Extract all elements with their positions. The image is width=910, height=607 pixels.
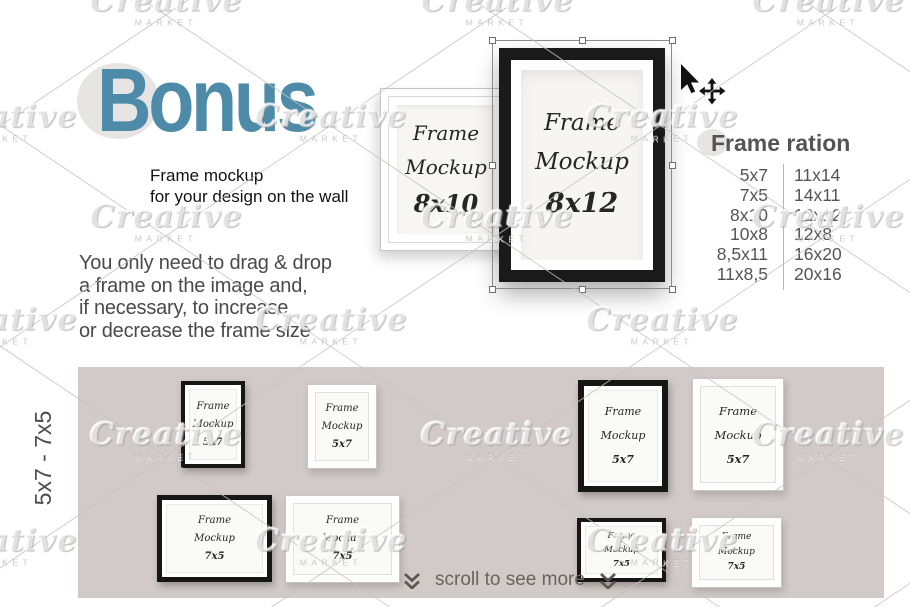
- watermark-sub: MARKET: [0, 558, 77, 567]
- frame-paper: FrameMockup7x5: [293, 503, 392, 575]
- frame-size-text: 7x5: [728, 560, 746, 575]
- move-cursor-icon: [680, 63, 726, 109]
- tagline-line1: Frame mockup: [150, 166, 348, 187]
- watermark-sub: MARKET: [0, 134, 77, 143]
- watermark-word: Creative: [0, 101, 77, 132]
- ratio-cell-left: 7x5: [688, 186, 768, 206]
- frame-text: Frame: [325, 400, 358, 418]
- frame-size-text: 7x5: [333, 548, 353, 566]
- frame-paper: FrameMockup7x5: [585, 526, 658, 574]
- gallery-frame-7x5-black-2[interactable]: FrameMockup7x5: [157, 495, 272, 582]
- frame-paper: FrameMockup5x7: [315, 392, 369, 461]
- ratio-cell-right: 16x20: [794, 245, 874, 265]
- watermark-sub: MARKET: [90, 18, 243, 27]
- frame-text: Mockup: [193, 416, 234, 434]
- frame-text: Frame: [196, 398, 229, 416]
- creative-market-watermark: CreativeMARKET: [0, 304, 77, 346]
- ratio-cell-right: 14x11: [794, 186, 874, 206]
- frame-text: Frame: [198, 512, 231, 530]
- creative-market-watermark: CreativeMARKET: [90, 201, 243, 243]
- selection-handle[interactable]: [669, 37, 676, 44]
- selection-handle[interactable]: [579, 286, 586, 293]
- frame-size-text: 5x7: [727, 447, 750, 471]
- description-line: or decrease the frame size: [79, 320, 332, 343]
- watermark-word: Creative: [421, 0, 574, 16]
- ratio-cell-right: 12x8: [794, 225, 874, 245]
- frame-text: Mockup: [322, 530, 363, 548]
- selection-handle[interactable]: [489, 286, 496, 293]
- tagline-line2: for your design on the wall: [150, 187, 348, 208]
- ratio-table-left-column: 5x77x58x1010x88,5x1111x8,5: [688, 166, 768, 285]
- frame-text: Mockup: [322, 418, 363, 436]
- ratio-cell-right: 11x14: [794, 166, 874, 186]
- ratio-table-right-column: 11x1414x1112x1212x816x2020x16: [794, 166, 874, 285]
- ratio-cell-left: 5x7: [688, 166, 768, 186]
- frame-paper: FrameMockup5x7: [700, 386, 776, 483]
- watermark-word: Creative: [90, 0, 243, 16]
- frame-text: Frame: [326, 512, 359, 530]
- scroll-hint: scroll to see more: [402, 568, 618, 592]
- creative-market-watermark: CreativeMARKET: [586, 304, 739, 346]
- watermark-sub: MARKET: [0, 337, 77, 346]
- selection-handle[interactable]: [669, 162, 676, 169]
- double-chevron-down-icon: [598, 572, 618, 589]
- frame-size-text: 5x7: [332, 436, 352, 454]
- description-line: if necessary, to increase: [79, 297, 332, 320]
- watermark-word: Creative: [586, 304, 739, 335]
- gallery-frame-5x7-white-1[interactable]: FrameMockup5x7: [307, 384, 377, 469]
- selection-handle[interactable]: [489, 37, 496, 44]
- creative-market-watermark: CreativeMARKET: [752, 0, 905, 27]
- frame-size-text: 5x7: [203, 434, 223, 452]
- frame-text: Mockup: [604, 543, 639, 557]
- frame-size-text: 7x5: [205, 548, 225, 566]
- description-line: You only need to drag & drop: [79, 252, 332, 275]
- page: Bonus Frame mockup for your design on th…: [0, 0, 910, 607]
- frame-paper: FrameMockup7x5: [699, 525, 774, 580]
- frame-text: Mockup: [601, 424, 646, 448]
- frame-size-text: 8x10: [414, 184, 478, 224]
- watermark-word: Creative: [0, 304, 77, 335]
- creative-market-watermark: CreativeMARKET: [90, 0, 243, 27]
- gallery-frame-7x5-white-3[interactable]: FrameMockup7x5: [285, 495, 400, 583]
- gallery-frame-5x7-black-0[interactable]: FrameMockup5x7: [181, 381, 245, 468]
- watermark-sub: MARKET: [90, 234, 243, 243]
- frame-text: Frame: [607, 529, 635, 543]
- frame-text: Mockup: [194, 530, 235, 548]
- double-chevron-down-icon: [402, 572, 422, 589]
- frame-text: Mockup: [715, 423, 762, 447]
- watermark-word: Creative: [752, 0, 905, 16]
- bonus-title: Bonus: [97, 56, 315, 146]
- frame-text: Frame: [722, 530, 752, 545]
- ratio-cell-right: 12x12: [794, 206, 874, 226]
- frame-paper: FrameMockup5x7: [189, 389, 237, 460]
- ratio-table-divider: [783, 164, 784, 290]
- ratio-cell-left: 10x8: [688, 225, 768, 245]
- frame-paper: FrameMockup5x7: [588, 390, 658, 482]
- gallery-frame-5x7-white-5[interactable]: FrameMockup5x7: [692, 378, 784, 491]
- selection-handle[interactable]: [579, 37, 586, 44]
- selection-handle[interactable]: [489, 162, 496, 169]
- ratio-cell-left: 8,5x11: [688, 245, 768, 265]
- gallery-frame-5x7-black-4[interactable]: FrameMockup5x7: [578, 380, 668, 492]
- ratio-cell-left: 8x10: [688, 206, 768, 226]
- selection-box[interactable]: [492, 40, 672, 289]
- ratio-cell-right: 20x16: [794, 265, 874, 285]
- creative-market-watermark: CreativeMARKET: [421, 0, 574, 27]
- creative-market-watermark: CreativeMARKET: [0, 101, 77, 143]
- watermark-sub: MARKET: [421, 18, 574, 27]
- frame-paper: Frame Mockup 8x10: [397, 105, 495, 234]
- frame-paper: FrameMockup7x5: [166, 504, 263, 573]
- scroll-hint-text: scroll to see more: [435, 569, 585, 591]
- watermark-sub: MARKET: [752, 18, 905, 27]
- frame-text: Frame: [413, 116, 479, 150]
- selection-handle[interactable]: [669, 286, 676, 293]
- gallery-frame-7x5-white-7[interactable]: FrameMockup7x5: [691, 517, 782, 588]
- description: You only need to drag & drop a frame on …: [79, 252, 332, 343]
- ratio-cell-left: 11x8,5: [688, 265, 768, 285]
- frame-text: Frame: [605, 400, 641, 424]
- gallery-side-label: 5x7 - 7x5: [30, 382, 58, 534]
- frame-size-text: 5x7: [612, 448, 634, 472]
- tagline: Frame mockup for your design on the wall: [150, 166, 348, 207]
- frame-text: Frame: [719, 399, 757, 423]
- watermark-sub: MARKET: [586, 337, 739, 346]
- description-line: a frame on the image and,: [79, 275, 332, 298]
- frame-text: Mockup: [718, 545, 755, 560]
- frame-ratio-title: Frame ration: [711, 130, 850, 157]
- frame-text: Mockup: [405, 150, 487, 184]
